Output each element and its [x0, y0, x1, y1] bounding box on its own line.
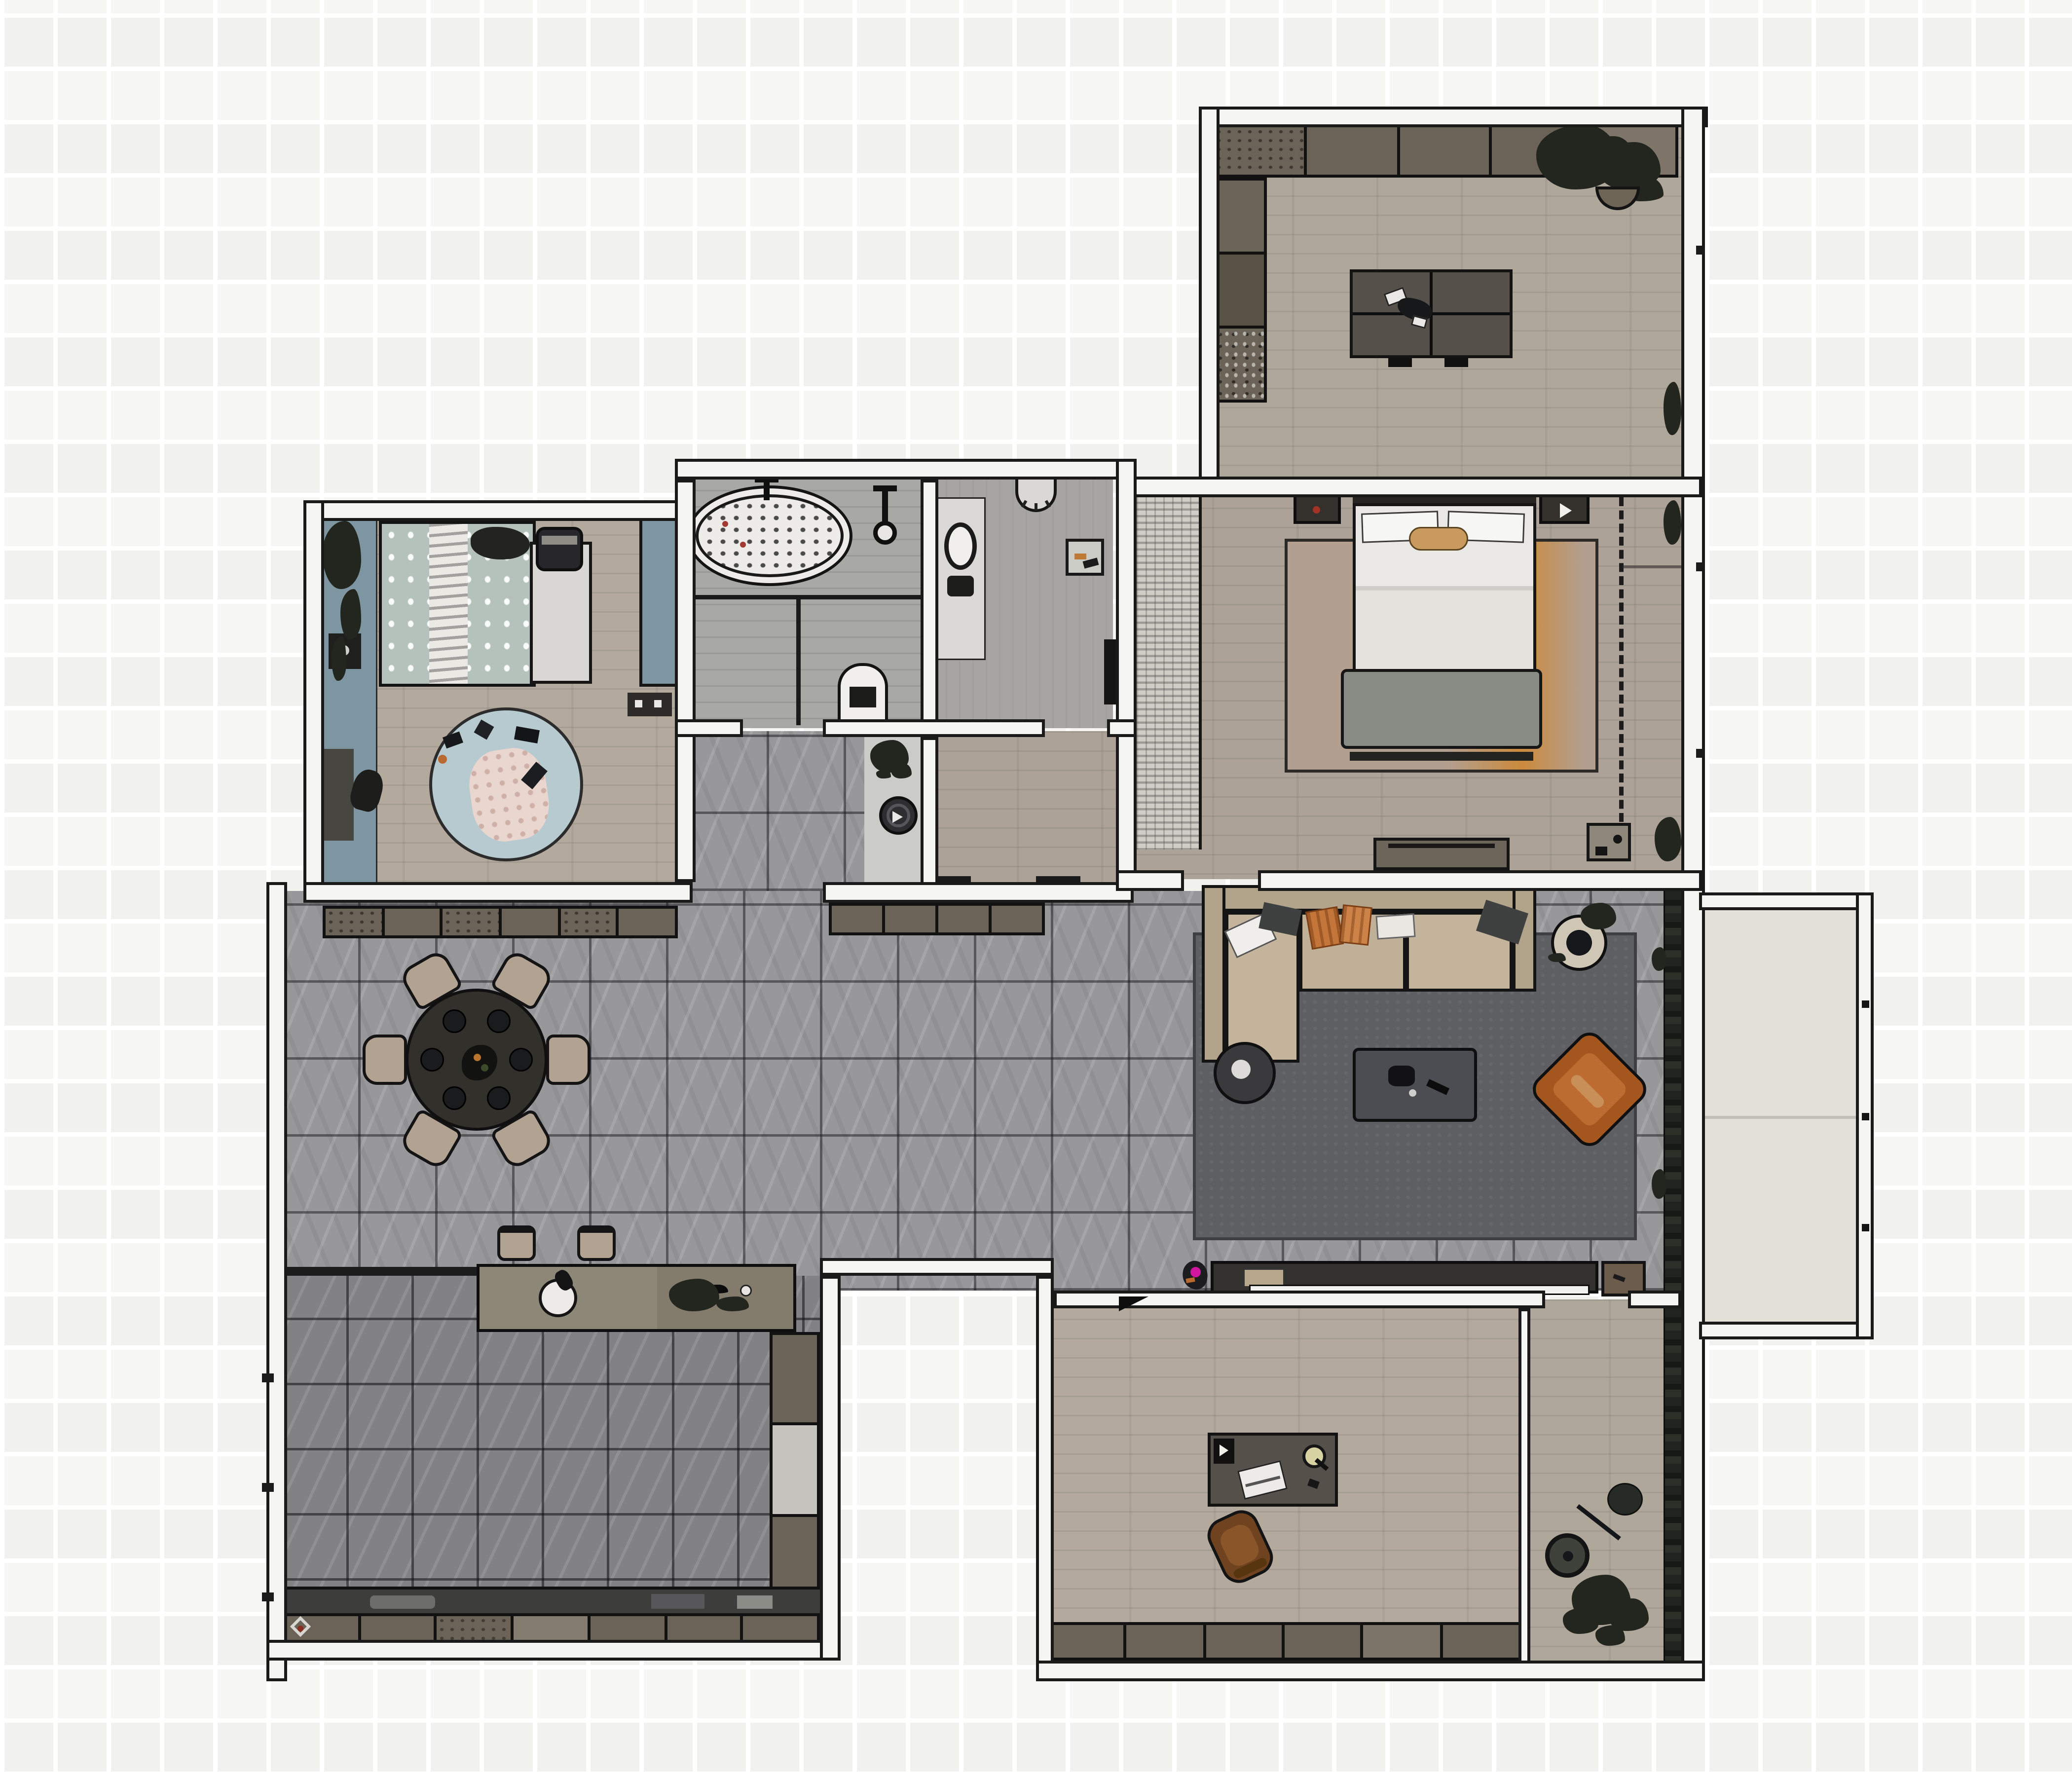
shower-crossbar — [873, 485, 897, 491]
living-window-plants — [1664, 891, 1681, 1291]
kids-bed — [379, 521, 536, 687]
wc-door-leaf — [1104, 639, 1116, 704]
cabinet-segment — [1214, 255, 1264, 326]
tub-red-fleck-2 — [740, 542, 746, 548]
balcony-midline — [1705, 1116, 1856, 1119]
window-tick-2 — [262, 1483, 274, 1492]
blanket-stripe — [429, 524, 468, 684]
unit-mark-1 — [1595, 847, 1607, 855]
cabinet-segment — [437, 1616, 511, 1640]
bedroom-plant-top-icon — [1664, 500, 1681, 545]
pillow-orange-1 — [1305, 906, 1344, 950]
coffee-table-dot — [1409, 1089, 1416, 1097]
counter-item-1 — [370, 1595, 435, 1609]
sideboard-a — [323, 906, 678, 938]
bathtub — [687, 485, 852, 586]
cabinet-segment — [832, 906, 882, 932]
office-base-cabinets — [1045, 1622, 1521, 1661]
plate-icon — [443, 1009, 466, 1033]
closet-dashed-line — [1619, 497, 1624, 861]
nightstand-right — [1539, 494, 1590, 524]
dresser-tv-unit — [1373, 838, 1510, 870]
cabinet-segment — [1306, 127, 1396, 175]
wall-balcony-top — [1699, 892, 1874, 910]
toilet-tick-2 — [1035, 503, 1037, 511]
candle-dot — [1313, 506, 1320, 514]
wall-study-left — [1199, 107, 1220, 488]
cabinet-segment — [885, 906, 935, 932]
cabinet-segment — [1048, 1625, 1124, 1658]
cabinet-segment — [1206, 1625, 1282, 1658]
stove-dot — [296, 1625, 305, 1633]
counter-item-3 — [737, 1595, 773, 1609]
sheet-fold-line — [1356, 586, 1533, 591]
double-bed — [1353, 503, 1536, 678]
bar-stools — [497, 1225, 616, 1261]
speaker-triangle — [1220, 1444, 1228, 1456]
vacuum-wedge — [892, 811, 903, 823]
water-heater — [838, 663, 888, 725]
kitchen-island — [477, 1264, 796, 1332]
tub-red-fleck-1 — [722, 521, 728, 527]
railing-post — [1861, 1112, 1869, 1120]
wall-kids-left — [303, 500, 324, 903]
living-plant-leaves — [1581, 903, 1616, 929]
play-triangle-icon — [1560, 503, 1572, 518]
cabinet-segment — [667, 1616, 740, 1640]
tv-line — [1388, 844, 1495, 848]
wall-bathwc-bottom-a — [675, 719, 743, 737]
study-chair-nub-2 — [1444, 358, 1468, 367]
hall-plant-icon — [870, 740, 909, 773]
bedroom-wardrobe-strip — [1137, 488, 1202, 850]
remote-icon — [1426, 1079, 1449, 1095]
plate-icon — [509, 1048, 533, 1072]
kitchen-counter-strip — [281, 1587, 820, 1613]
sink-basin-icon — [944, 522, 977, 570]
railing-post — [1861, 1000, 1869, 1007]
cabinet-segment — [384, 909, 440, 935]
bedroom-plant-bottom-icon — [1655, 817, 1681, 861]
wall-office-corridor-divider — [1518, 1308, 1530, 1681]
toy-ball-orange — [438, 755, 447, 764]
wall-notch-top — [820, 1258, 1054, 1276]
sofa-arm-left — [1202, 885, 1225, 1063]
office-desk — [1208, 1433, 1338, 1507]
wall-bedroom-left — [1116, 459, 1137, 891]
centerpiece — [462, 1045, 497, 1080]
vanity-stool — [947, 576, 974, 596]
corridor-plant-cluster — [1572, 1575, 1631, 1625]
study-plant-icon — [1536, 124, 1619, 189]
duvet-lower — [1356, 591, 1533, 675]
plate-icon — [443, 1086, 466, 1110]
box-dot — [339, 645, 349, 656]
cabinet-segment — [619, 909, 675, 935]
kitchen-base-cabinets — [281, 1613, 820, 1643]
cabinet-segment — [1285, 1625, 1361, 1658]
window-tick-3 — [262, 1592, 274, 1601]
pillow-orange-2 — [1339, 904, 1372, 946]
cabinet-segment — [773, 1426, 817, 1514]
cabinet-segment — [992, 906, 1042, 932]
corridor-plant-pot — [1545, 1533, 1590, 1578]
cabinet-segment — [361, 1616, 434, 1640]
plate-icon — [420, 1048, 444, 1072]
centerpiece-orange-dot — [474, 1054, 481, 1061]
table-dot-2 — [654, 700, 662, 707]
orange-tick — [1185, 1277, 1195, 1283]
window-plant-blob-1 — [1652, 947, 1666, 971]
cabinet-segment — [326, 909, 381, 935]
wall-bathwc-bottom-c — [1107, 719, 1137, 737]
wall-dining-left — [266, 882, 287, 1681]
coffee-table — [1353, 1048, 1477, 1122]
counter-item-2 — [651, 1594, 704, 1609]
kids-toy-basket — [536, 527, 583, 571]
nightstand-left — [1294, 494, 1341, 524]
cabinet-segment — [773, 1335, 817, 1423]
round-side-table — [1214, 1042, 1276, 1104]
side-table-item — [1231, 1060, 1251, 1079]
cabinet-segment — [560, 909, 616, 935]
window-tick-1 — [262, 1373, 274, 1382]
bar-stool — [577, 1225, 616, 1261]
cooktop-white-dot — [740, 1285, 752, 1296]
wall-bedroom-bottom-a — [1116, 870, 1184, 891]
cabinet-segment — [743, 1616, 817, 1640]
cabinet-segment — [1214, 181, 1264, 252]
window-tick-bedroom-1 — [1696, 562, 1705, 571]
laptop-icon — [1237, 1460, 1288, 1500]
wall-office-left — [1036, 1276, 1054, 1681]
wall-balcony-bottom — [1699, 1322, 1874, 1339]
window-plant-blob-2 — [1652, 1169, 1666, 1199]
kids-side-table — [628, 693, 672, 716]
laptop-hinge — [1245, 1476, 1280, 1487]
plate-icon — [487, 1009, 511, 1033]
centerpiece-leaf-dot — [481, 1064, 488, 1072]
window-tick-study — [1696, 246, 1705, 255]
coffee-table-tray — [1388, 1066, 1415, 1086]
cabinet-segment — [1443, 1625, 1518, 1658]
balcony-railing — [1856, 892, 1874, 1339]
toilet-tick-3 — [1045, 500, 1051, 508]
corridor-window-plants — [1664, 1308, 1681, 1661]
wall-bathwc-bottom-b — [823, 719, 1045, 737]
wall-kids-top — [303, 500, 693, 521]
kitchen-tall-cabinets — [770, 1332, 820, 1607]
unit-mark-2 — [1613, 835, 1622, 844]
window-tick-bedroom-2 — [1696, 749, 1705, 758]
bed-cushion-tan — [1409, 527, 1468, 551]
kids-storage-box — [329, 633, 361, 669]
cabinet-segment — [1127, 1625, 1203, 1658]
wall-kids-bottom — [303, 882, 693, 903]
glass-partition-h — [693, 595, 924, 599]
study-craft-table — [1350, 269, 1513, 358]
desk-speaker — [1214, 1439, 1234, 1464]
desk-mouse — [1307, 1479, 1320, 1489]
pot-center-dot — [1563, 1551, 1573, 1561]
bed-bench — [1341, 669, 1542, 749]
toilet-tick-1 — [1021, 500, 1028, 508]
round-dining-table — [406, 989, 548, 1131]
basket-stripe — [542, 536, 577, 545]
hall-pocket-floor — [690, 731, 864, 891]
railing-post — [1861, 1224, 1869, 1232]
cabinet-segment — [1364, 1625, 1440, 1658]
plant-leaf-head — [1607, 1483, 1643, 1516]
dining-chair — [363, 1035, 407, 1085]
cabinet-segment — [502, 909, 557, 935]
floor-plan-canvas — [0, 0, 2072, 1776]
cabinet-segment — [938, 906, 989, 932]
floor-drain — [1066, 539, 1104, 576]
wc-vanity — [935, 497, 986, 660]
cabinet-segment — [591, 1616, 664, 1640]
cooktop-items — [669, 1279, 719, 1311]
wall-kitchen-bottom — [266, 1640, 841, 1661]
dining-chair — [546, 1035, 591, 1085]
wall-office-bottom — [1036, 1661, 1705, 1681]
cabinet-segment — [443, 909, 499, 935]
cabinet-segment — [514, 1616, 587, 1640]
robot-vacuum-icon — [879, 796, 918, 835]
kitchen-ledge-line — [281, 1267, 477, 1276]
drain-orange-tick — [1074, 554, 1086, 559]
table-dot-1 — [635, 700, 642, 707]
cabinet-segment — [1400, 127, 1489, 175]
floor-seam — [1622, 565, 1684, 568]
bar-stool — [497, 1225, 536, 1261]
wall-bath-wc-divider — [921, 480, 938, 731]
study-chair-nub-1 — [1388, 358, 1412, 367]
wall-wcbath-top — [675, 459, 1137, 480]
wall-bedroom-top — [1116, 477, 1702, 497]
side-table-tick — [1613, 1274, 1626, 1282]
wall-study-top — [1199, 107, 1708, 127]
pillow-white-mid — [1375, 913, 1415, 939]
heater-screen — [850, 687, 876, 707]
sideboard-b — [829, 903, 1045, 935]
tub-inner-ring — [696, 494, 844, 577]
shower-head-icon — [873, 521, 897, 545]
wall-kitchen-right — [820, 1276, 841, 1661]
wall-hall-south — [823, 882, 1134, 903]
study-window-plant-icon — [1664, 382, 1681, 435]
wall-living-bottom-b — [1628, 1291, 1681, 1308]
glass-partition-v — [796, 595, 801, 725]
wall-kids-right — [675, 480, 696, 882]
bed-bench-base — [1350, 752, 1533, 761]
kids-shelf-items — [323, 521, 361, 589]
plate-icon — [487, 1086, 511, 1110]
hall-wood-strip — [932, 731, 1119, 888]
wall-bedroom-bottom-b — [1258, 870, 1702, 891]
cabinet-segment — [1214, 127, 1303, 175]
cabinet-segment — [1214, 329, 1264, 400]
corner-unit — [1587, 823, 1631, 861]
wall-nook-divider — [921, 737, 938, 885]
magenta-dot — [1189, 1266, 1201, 1278]
